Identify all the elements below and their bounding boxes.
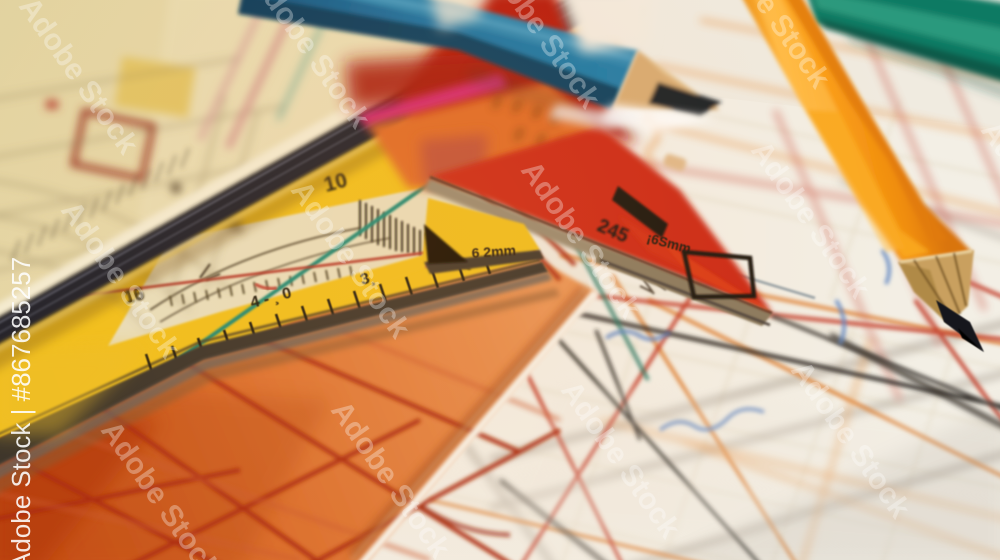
svg-text:Adobe Stock | #867685257: Adobe Stock | #867685257 <box>6 257 36 560</box>
